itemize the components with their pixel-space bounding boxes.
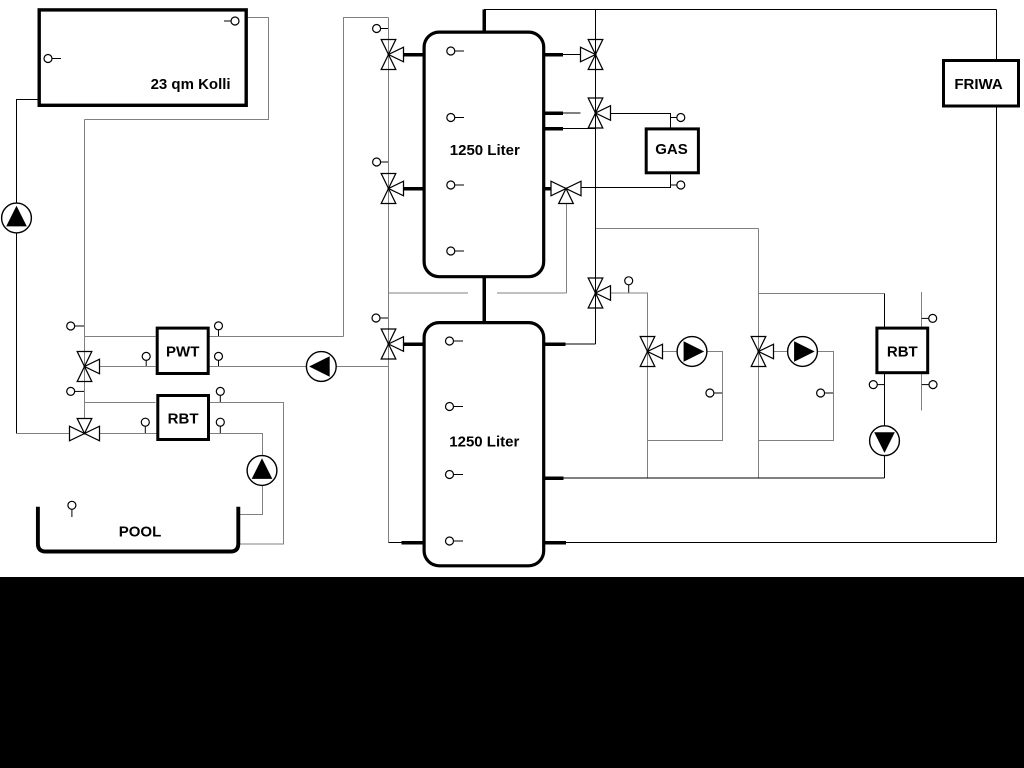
- svg-text:RBT: RBT: [887, 344, 918, 361]
- svg-text:GAS: GAS: [655, 141, 688, 158]
- svg-text:1250 Liter: 1250 Liter: [449, 434, 519, 451]
- svg-text:1250 Liter: 1250 Liter: [450, 142, 520, 159]
- svg-text:FRIWA: FRIWA: [954, 76, 1002, 93]
- svg-text:POOL: POOL: [119, 523, 162, 540]
- svg-text:PWT: PWT: [166, 344, 199, 361]
- svg-text:23 qm Kolli: 23 qm Kolli: [151, 76, 231, 93]
- svg-text:RBT: RBT: [168, 411, 199, 428]
